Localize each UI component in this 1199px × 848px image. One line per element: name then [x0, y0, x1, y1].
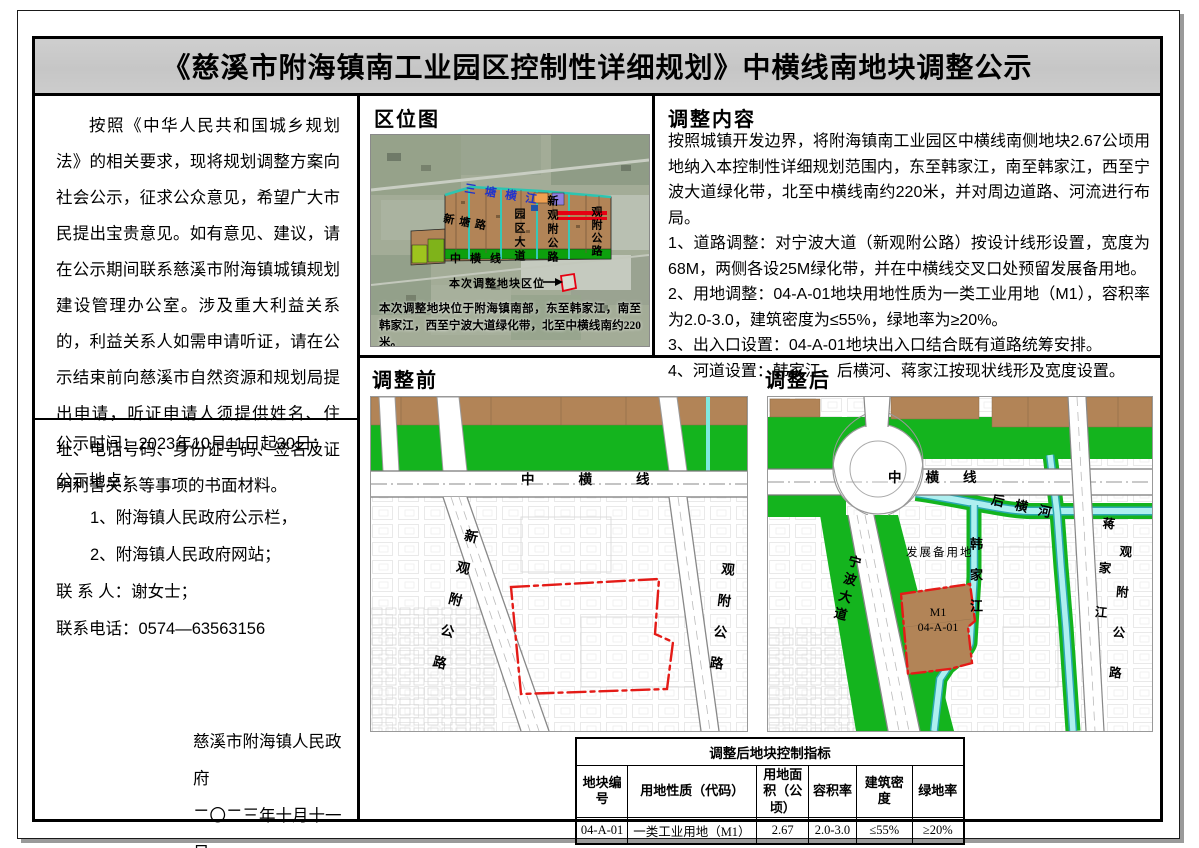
notice-time: 公示时间：2023年10月11日起30日；: [56, 426, 346, 463]
cell-far: 2.0-3.0: [809, 817, 857, 844]
col-header-green: 绿地率: [912, 766, 964, 818]
table-title: 调整后地块控制指标: [576, 738, 964, 766]
location-map-cell: 区位图: [360, 96, 655, 358]
col-header-area: 用地面积（公顷）: [757, 766, 809, 818]
signature-block: 慈溪市附海镇人民政府 二〇二三年十月十一日: [193, 724, 357, 848]
adjustment-heading: 调整内容: [668, 103, 756, 132]
adjustment-item-3: 3、出入口设置：04-A-01地块出入口结合既有道路统筹安排。: [668, 333, 1150, 359]
table-row: 04-A-01 一类工业用地（M1） 2.67 2.0-3.0 ≤55% ≥20…: [576, 817, 964, 844]
cell-area: 2.67: [757, 817, 809, 844]
col-header-density: 建筑密度: [856, 766, 912, 818]
location-caption: 本次调整地块位于附海镇南部，东至韩家江，南至韩家江，西至宁波大道绿化带，北至中横…: [379, 301, 641, 347]
signature-date: 二〇二三年十月十一日: [193, 798, 357, 848]
cell-density: ≤55%: [856, 817, 912, 844]
after-adjustment-map: 中横线 后横河 宁波大道 韩家江 蒋家江 观附公路 发展备用地 M1 04-A-…: [767, 396, 1153, 732]
notice-page: 《慈溪市附海镇南工业园区控制性详细规划》中横线南地块调整公示 按照《中华人民共和…: [0, 0, 1199, 848]
cell-plot-id: 04-A-01: [576, 817, 628, 844]
road-guanfu-label: 观附公路: [588, 206, 604, 258]
contact-phone: 联系电话：0574—63563156: [56, 611, 346, 648]
location-map-heading: 区位图: [374, 103, 440, 132]
adjustment-item-2: 2、用地调整：04-A-01地块用地性质为一类工业用地（M1），容积率为2.0-…: [668, 282, 1150, 333]
plot-use-label: M1: [896, 605, 980, 620]
plot-id-label: 04-A-01: [896, 620, 980, 635]
title-band: 《慈溪市附海镇南工业园区控制性详细规划》中横线南地块调整公示: [35, 39, 1160, 96]
cell-green: ≥20%: [912, 817, 964, 844]
before-adjustment-map: 中横线 新观附公路 观附公路: [370, 396, 748, 732]
notice-details: 公示时间：2023年10月11日起30日； 公示地点： 1、附海镇人民政府公示栏…: [56, 426, 346, 648]
notice-place-2: 2、附海镇人民政府网站；: [56, 537, 346, 574]
before-road-zhongheng-label: 中横线: [521, 468, 694, 488]
after-map-heading: 调整后: [765, 364, 831, 393]
left-panel: 按照《中华人民共和国城乡规划法》的相关要求，现将规划调整方案向社会公示，征求公众…: [35, 96, 360, 819]
signature-org: 慈溪市附海镇人民政府: [193, 724, 357, 798]
plot-callout-label: 本次调整地块区位: [449, 275, 545, 291]
before-map-heading: 调整前: [372, 364, 438, 393]
road-zhongheng-label: 中横线: [450, 250, 510, 266]
plot-labels: M1 04-A-01: [896, 605, 980, 635]
adjustment-content-cell: 调整内容 按照城镇开发边界，将附海镇南工业园区中横线南侧地块2.67公顷用地纳入…: [655, 96, 1160, 358]
col-header-land-use: 用地性质（代码）: [628, 766, 757, 818]
road-yuanqudadao-label: 园区大道: [511, 208, 527, 264]
after-road-zhongheng-label: 中横线: [888, 466, 1001, 486]
cell-land-use: 一类工业用地（M1）: [628, 817, 757, 844]
adjustment-intro: 按照城镇开发边界，将附海镇南工业园区中横线南侧地块2.67公顷用地纳入本控制性详…: [668, 129, 1150, 231]
location-satellite-map: 三塘横江 新塘路 园区大道 新观附公路 观附公路 中横线 本次调整地块区位 本次…: [370, 134, 650, 347]
notice-place-label: 公示地点：: [56, 463, 346, 500]
notice-place-1: 1、附海镇人民政府公示栏，: [56, 500, 346, 537]
control-indicators-table: 调整后地块控制指标 地块编号 用地性质（代码） 用地面积（公顷） 容积率 建筑密…: [575, 737, 965, 845]
col-header-far: 容积率: [809, 766, 857, 818]
reserve-land-label: 发展备用地: [906, 544, 974, 560]
left-divider: [35, 418, 357, 420]
road-xinguanfu-label: 新观附公路: [544, 195, 560, 265]
page-title: 《慈溪市附海镇南工业园区控制性详细规划》中横线南地块调整公示: [162, 46, 1032, 86]
col-header-plot-id: 地块编号: [576, 766, 628, 818]
contact-person: 联 系 人：谢女士；: [56, 574, 346, 611]
adjustment-item-4: 4、河道设置：韩家江、后横河、蒋家江按现状线形及宽度设置。: [668, 359, 1150, 385]
adjustment-item-1: 1、道路调整：对宁波大道（新观附公路）按设计线形设置，宽度为68M，两侧各设25…: [668, 231, 1150, 282]
adjustment-text: 按照城镇开发边界，将附海镇南工业园区中横线南侧地块2.67公顷用地纳入本控制性详…: [668, 129, 1150, 384]
